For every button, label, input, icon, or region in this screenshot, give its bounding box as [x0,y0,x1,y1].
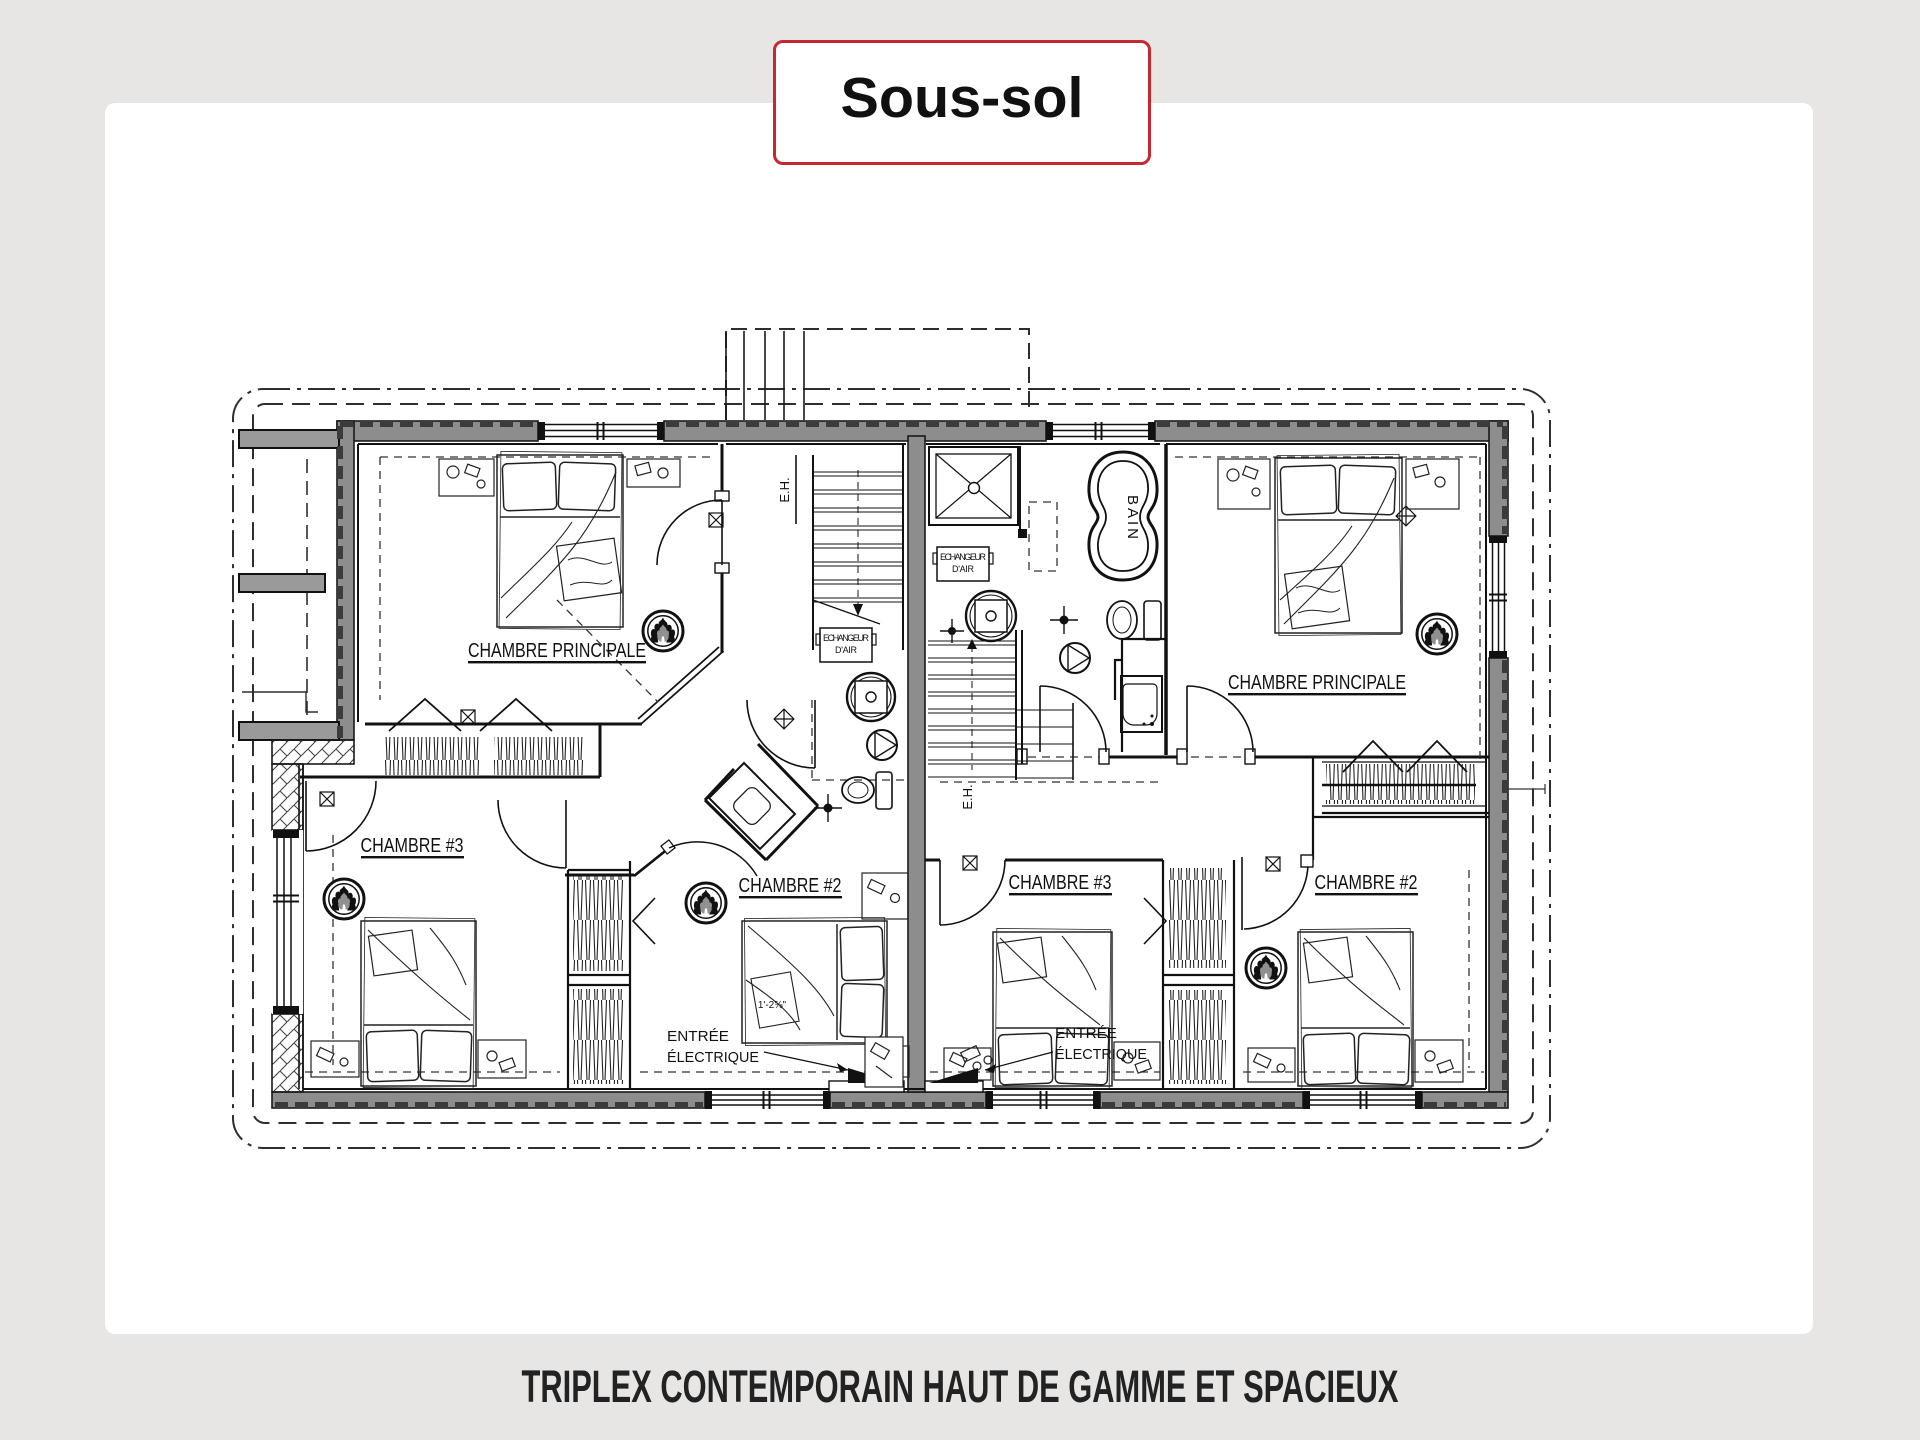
svg-text:CHAMBRE PRINCIPALE: CHAMBRE PRINCIPALE [468,640,646,662]
svg-text:Sous-sol: Sous-sol [841,66,1084,130]
svg-text:CHAMBRE #3: CHAMBRE #3 [361,835,464,857]
svg-text:D'AIR: D'AIR [952,564,975,574]
svg-text:ÉLECTRIQUE: ÉLECTRIQUE [667,1049,759,1066]
svg-text:CHAMBRE #2: CHAMBRE #2 [739,875,842,897]
svg-text:E.H.: E.H. [777,477,792,502]
svg-text:TRIPLEX CONTEMPORAIN HAUT DE G: TRIPLEX CONTEMPORAIN HAUT DE GAMME ET SP… [522,1361,1399,1412]
svg-text:ENTRÉE: ENTRÉE [667,1028,729,1045]
svg-text:CHAMBRE PRINCIPALE: CHAMBRE PRINCIPALE [1228,672,1406,694]
svg-text:ÉLECTRIQUE: ÉLECTRIQUE [1055,1046,1147,1063]
svg-text:ENTRÉE: ENTRÉE [1055,1025,1117,1042]
svg-text:E.H.: E.H. [960,784,975,809]
svg-text:CHAMBRE #3: CHAMBRE #3 [1009,872,1112,894]
svg-text:ECHANGEUR: ECHANGEUR [823,633,870,643]
svg-text:ECHANGEUR: ECHANGEUR [940,552,987,562]
svg-text:D'AIR: D'AIR [835,645,858,655]
svg-text:1'-2⅝": 1'-2⅝" [758,1000,787,1011]
svg-text:CHAMBRE #2: CHAMBRE #2 [1315,872,1418,894]
svg-text:BAIN: BAIN [1124,495,1141,539]
